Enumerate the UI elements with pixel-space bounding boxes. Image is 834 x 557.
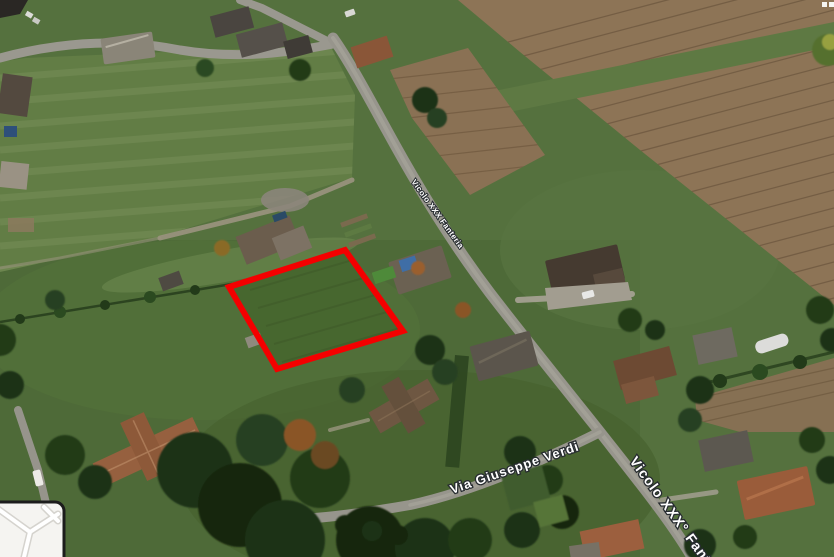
map-viewport[interactable]: Vicolo XXX Fanteria Via Giuseppe Verdi V… bbox=[0, 0, 834, 557]
minimap-toggle[interactable] bbox=[0, 502, 64, 557]
